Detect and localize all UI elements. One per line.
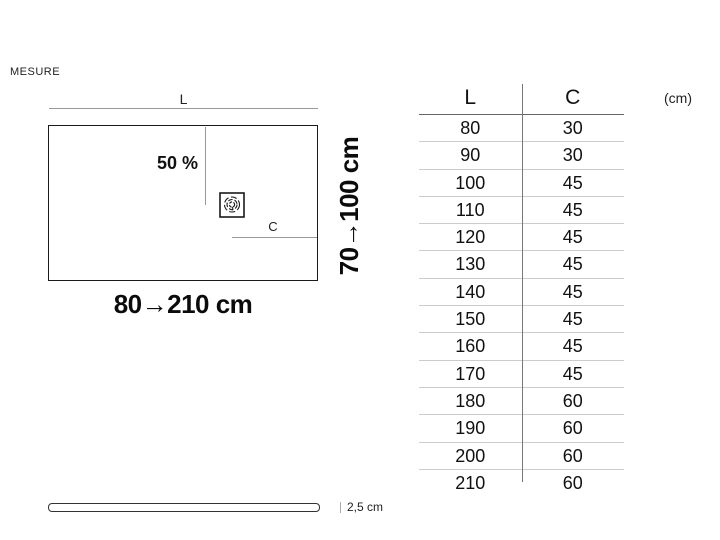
thickness-label: 2,5 cm <box>347 500 383 514</box>
table-cell: 80 <box>419 115 522 141</box>
shower-drain-icon <box>219 192 245 218</box>
table-cell: 45 <box>522 224 625 250</box>
table-cell: 90 <box>419 142 522 168</box>
table-cell: 30 <box>522 142 625 168</box>
table-cell: 100 <box>419 170 522 196</box>
table-cell: 150 <box>419 306 522 332</box>
column-header-l: L <box>419 84 522 114</box>
table-cell: 210 <box>419 470 522 496</box>
length-range-label: 80→210 cm <box>48 289 318 320</box>
table-cell: 45 <box>522 279 625 305</box>
table-cell: 45 <box>522 306 625 332</box>
section-title: MESURE <box>10 66 60 78</box>
top-dimension-line <box>49 108 318 109</box>
table-cell: 190 <box>419 415 522 441</box>
width-range-label: 70→100 cm <box>335 116 363 296</box>
tray-top-view <box>48 125 318 281</box>
column-header-c: C <box>522 84 625 114</box>
table-cell: 45 <box>522 170 625 196</box>
table-cell: 120 <box>419 224 522 250</box>
slope-label: 50 % <box>138 153 198 174</box>
table-cell: 60 <box>522 470 625 496</box>
measurement-sheet: MESURE L 50 % C 80→210 cm 70→100 cm L C … <box>0 0 720 540</box>
table-cell: 170 <box>419 361 522 387</box>
top-dimension-label: L <box>49 91 318 107</box>
unit-label: (cm) <box>664 90 692 106</box>
table-cell: 60 <box>522 443 625 469</box>
table-cell: 160 <box>419 333 522 359</box>
table-cell: 45 <box>522 361 625 387</box>
table-cell: 45 <box>522 333 625 359</box>
tray-side-view <box>48 503 320 512</box>
table-cell: 60 <box>522 415 625 441</box>
table-column-divider <box>522 84 523 482</box>
table-cell: 140 <box>419 279 522 305</box>
thickness-tick <box>340 502 341 513</box>
slope-divider-line <box>205 127 206 205</box>
table-cell: 130 <box>419 251 522 277</box>
table-cell: 200 <box>419 443 522 469</box>
drain-dimension-line <box>232 237 317 238</box>
table-cell: 30 <box>522 115 625 141</box>
drain-dimension-label: C <box>260 219 286 234</box>
table-cell: 45 <box>522 251 625 277</box>
table-cell: 60 <box>522 388 625 414</box>
table-cell: 110 <box>419 197 522 223</box>
table-cell: 180 <box>419 388 522 414</box>
table-cell: 45 <box>522 197 625 223</box>
